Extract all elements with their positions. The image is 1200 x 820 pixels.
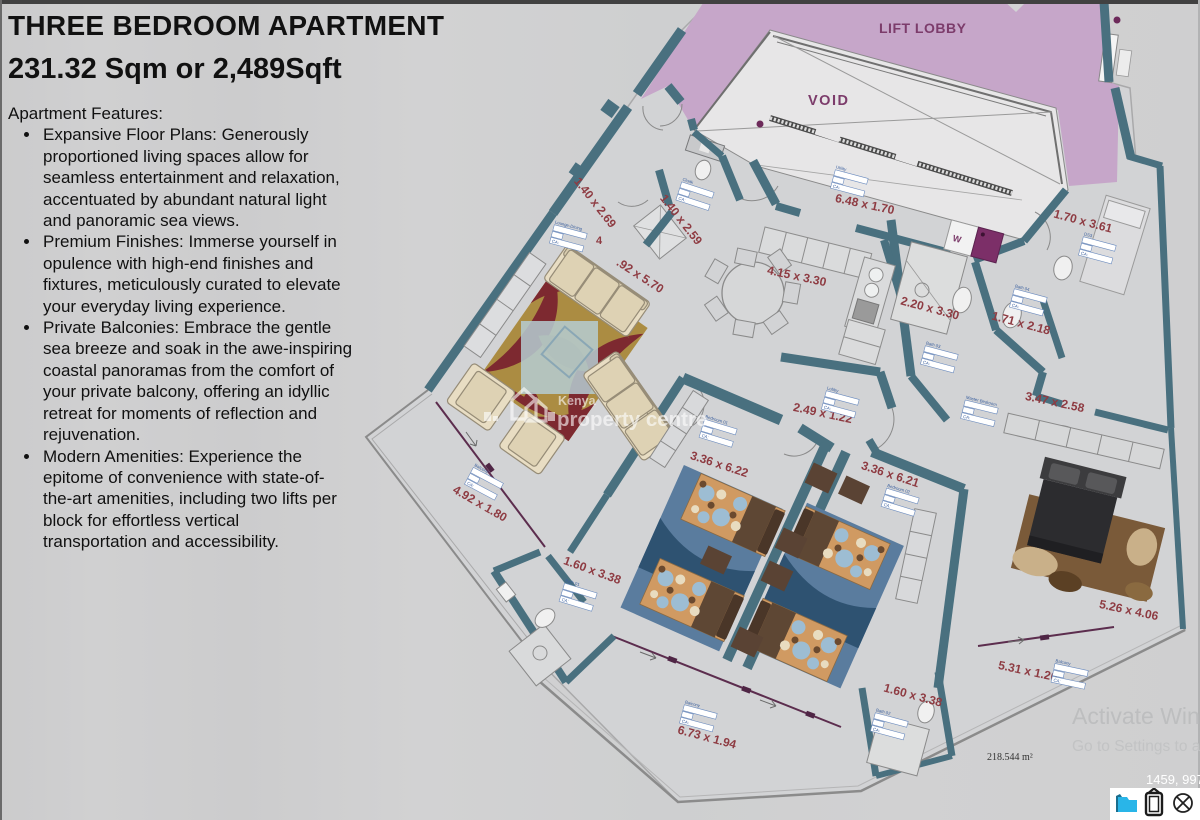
svg-text:4: 4 [596, 235, 603, 247]
svg-text:property centre: property centre [557, 408, 707, 431]
svg-text:LIFT LOBBY: LIFT LOBBY [879, 20, 967, 36]
svg-text:218.544 m²: 218.544 m² [987, 752, 1033, 763]
svg-text:Kenya: Kenya [558, 394, 597, 408]
svg-text:VOID: VOID [808, 93, 849, 109]
